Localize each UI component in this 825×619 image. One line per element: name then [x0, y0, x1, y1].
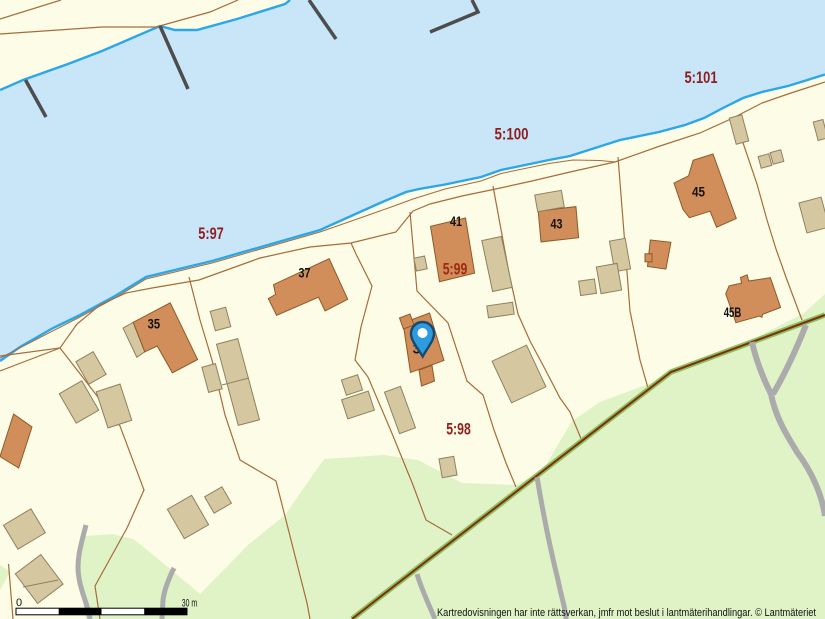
svg-text:5:97: 5:97 — [198, 225, 224, 243]
svg-text:45: 45 — [692, 185, 705, 200]
svg-text:5:101: 5:101 — [685, 69, 718, 87]
svg-text:43: 43 — [551, 217, 563, 232]
svg-text:5:98: 5:98 — [446, 421, 471, 439]
svg-text:Kartredovisningen har inte rät: Kartredovisningen har inte rättsverkan, … — [437, 607, 816, 619]
svg-text:37: 37 — [299, 265, 311, 280]
svg-text:0: 0 — [16, 597, 22, 609]
svg-text:30 m: 30 m — [182, 598, 198, 610]
svg-text:45B: 45B — [724, 305, 742, 320]
svg-text:35: 35 — [148, 317, 161, 332]
svg-text:5:99: 5:99 — [443, 261, 468, 279]
svg-text:41: 41 — [450, 214, 462, 229]
svg-text:5:100: 5:100 — [495, 126, 529, 144]
